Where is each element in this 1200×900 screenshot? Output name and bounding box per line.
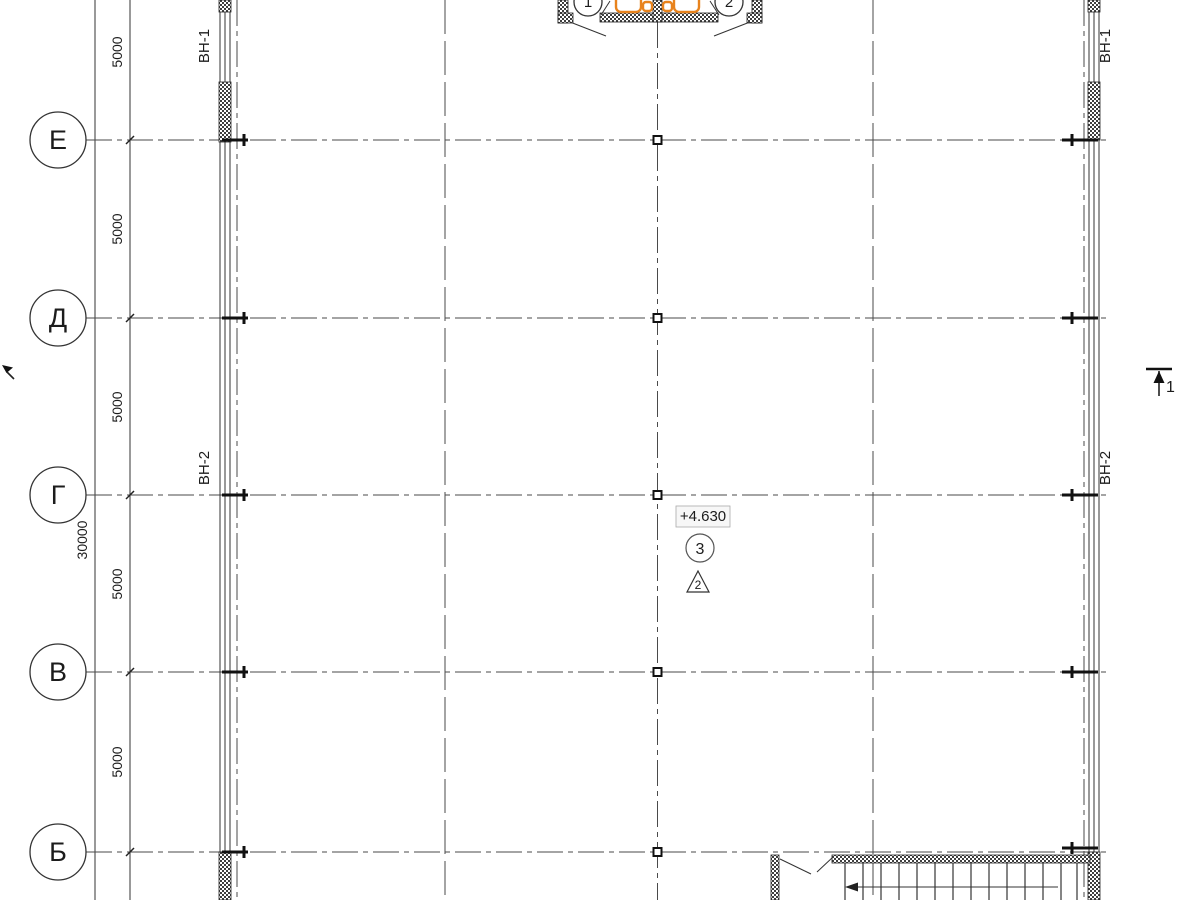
stairs-block — [771, 855, 1090, 900]
door-leaf — [780, 859, 811, 874]
dim-5000: 5000 — [109, 213, 125, 244]
dim-5000: 5000 — [109, 568, 125, 599]
section-mark-right: 1 — [1146, 369, 1175, 396]
window-mark-vn2-left: ВН-2 — [196, 451, 213, 485]
window-mark-vn2-right: ВН-2 — [1097, 451, 1114, 485]
elevation-value: +4.630 — [680, 508, 726, 525]
floor-plan-screenshot: 1 2 Е Д Г В Б 5000 — [0, 0, 1200, 900]
section-mark-left — [2, 365, 14, 379]
axis-col-label: 2 — [725, 0, 733, 11]
axis-col-label: 1 — [584, 0, 592, 11]
axis-row-label: Б — [49, 837, 67, 867]
entrance-vestibule: 1 2 — [558, 0, 762, 36]
axis-bubbles-rows: Е Д Г В Б — [30, 112, 86, 880]
axis-row-label: Е — [49, 125, 67, 155]
stair-treads — [845, 863, 1077, 900]
axis-row-label: В — [49, 657, 67, 687]
floor-plan-canvas: 1 2 Е Д Г В Б 5000 — [0, 0, 1200, 900]
dim-total-30000: 30000 — [74, 520, 90, 559]
window-marks: ВН-1 ВН-1 ВН-2 ВН-2 — [196, 29, 1114, 485]
elevation-mark: +4.630 — [676, 506, 730, 527]
door-leaf — [817, 857, 833, 872]
dim-5000: 5000 — [109, 391, 125, 422]
left-wall — [219, 0, 231, 900]
right-wall — [1088, 0, 1100, 900]
detail-number: 3 — [696, 541, 705, 558]
node-number: 2 — [695, 578, 702, 592]
window-mark-vn1-right: ВН-1 — [1097, 29, 1114, 63]
axis-row-label: Д — [49, 303, 67, 333]
stair-direction-arrow — [845, 883, 858, 892]
dim-5000: 5000 — [109, 36, 125, 67]
window-mark-vn1-left: ВН-1 — [196, 29, 213, 63]
dim-5000: 5000 — [109, 746, 125, 777]
axis-row-label: Г — [51, 480, 66, 510]
section-number: 1 — [1166, 379, 1175, 396]
node-marker-triangle: 2 — [687, 571, 709, 592]
detail-marker-circle: 3 — [686, 534, 714, 562]
